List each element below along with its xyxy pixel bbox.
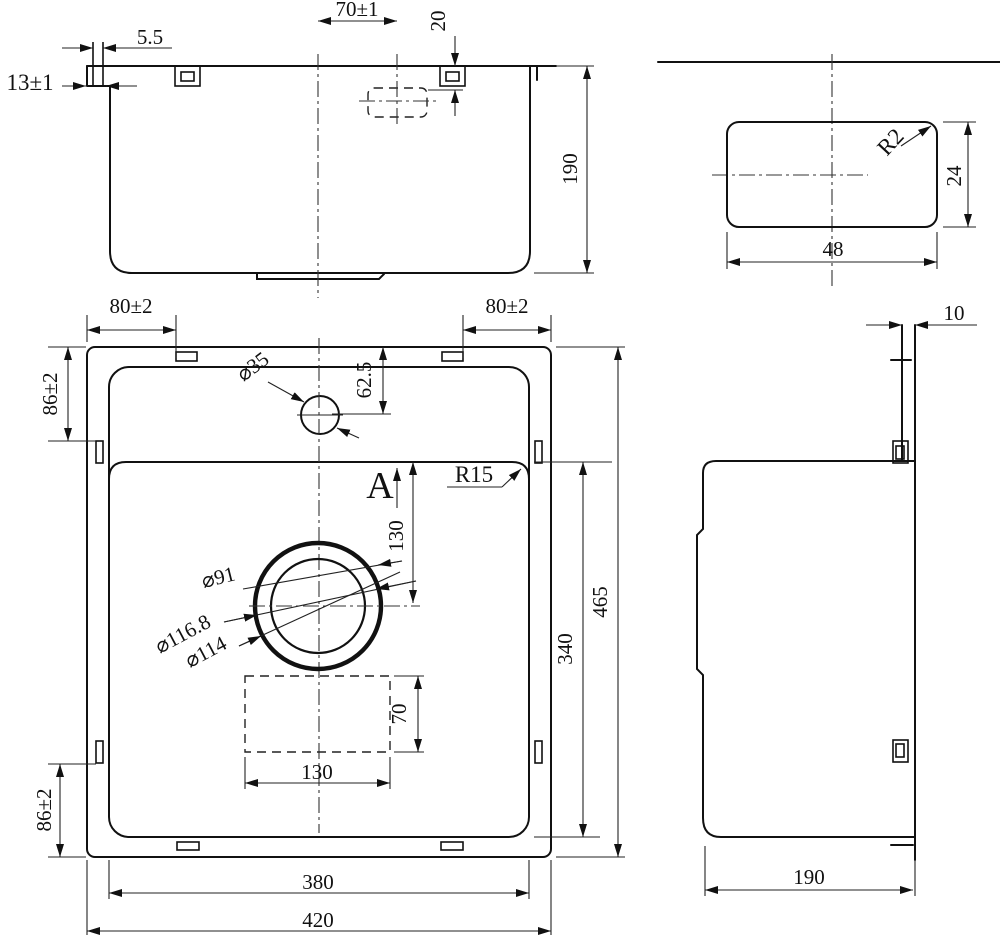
front-view-outline bbox=[87, 42, 556, 298]
dim-label-pad-width: 130 bbox=[301, 760, 333, 784]
dim-label-rim-height: 13±1 bbox=[6, 70, 53, 95]
dim-label-outer-width: 420 bbox=[302, 908, 334, 932]
dim-label-bowl-corner-radius: R15 bbox=[455, 462, 493, 487]
dim-label-overflow-offset: 70±1 bbox=[335, 0, 378, 21]
front-view-dimensions: 5.5 13±1 70±1 20 190 bbox=[6, 0, 594, 273]
side-view-outline bbox=[697, 325, 915, 860]
dim-label-detail-height: 24 bbox=[942, 165, 966, 187]
clip-front-left bbox=[175, 66, 200, 86]
detail-view-a-dimensions: R2 24 48 bbox=[727, 122, 976, 269]
dim-label-bowl-depth: 190 bbox=[558, 153, 582, 185]
technical-drawing: 5.5 13±1 70±1 20 190 R2 24 48 bbox=[0, 0, 1000, 935]
top-view-dimensions: 80±2 80±2 86±2 86±2 62.5 ⌀35 A R15 130 ⌀… bbox=[32, 294, 625, 935]
dim-label-rim-thickness: 10 bbox=[944, 301, 965, 325]
dim-label-drain-dia-inner: ⌀91 bbox=[199, 561, 237, 592]
dim-label-clip-offset-top: 86±2 bbox=[38, 372, 62, 415]
dim-label-pad-height: 70 bbox=[387, 704, 411, 725]
dim-label-side-depth: 190 bbox=[793, 865, 825, 889]
dim-label-clip-offset-left: 80±2 bbox=[109, 294, 152, 318]
dim-label-faucet-offset: 62.5 bbox=[352, 362, 376, 399]
dim-label-clip-offset-right: 80±2 bbox=[485, 294, 528, 318]
dim-label-drain-from-bowl-top: 130 bbox=[384, 520, 408, 552]
view-direction-label: A bbox=[366, 465, 394, 507]
dim-label-outer-height: 465 bbox=[588, 586, 612, 618]
side-view-dimensions: 10 190 bbox=[705, 301, 977, 896]
dim-label-detail-radius: R2 bbox=[872, 124, 909, 161]
dim-label-bowl-height: 340 bbox=[553, 633, 577, 665]
clip-front-right bbox=[440, 66, 465, 86]
dim-label-clip-offset-bottom: 86±2 bbox=[32, 788, 56, 831]
dim-label-rim-lip-width: 5.5 bbox=[137, 25, 163, 49]
dim-label-overflow-depth: 20 bbox=[426, 11, 450, 32]
dim-label-inner-width: 380 bbox=[302, 870, 334, 894]
dim-label-detail-width: 48 bbox=[823, 237, 844, 261]
drain-pad-hidden bbox=[245, 676, 390, 752]
dim-label-faucet-dia: ⌀35 bbox=[232, 347, 273, 386]
